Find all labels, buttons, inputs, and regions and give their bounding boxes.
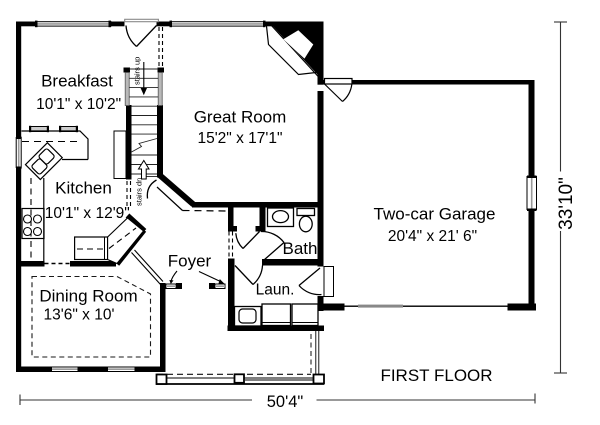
svg-text:Kitchen: Kitchen xyxy=(55,179,112,198)
svg-text:Bath: Bath xyxy=(283,239,318,258)
svg-text:Breakfast: Breakfast xyxy=(41,71,113,90)
svg-text:15'2" x 17'1": 15'2" x 17'1" xyxy=(197,130,282,147)
svg-text:10'1" x 12'9": 10'1" x 12'9" xyxy=(45,205,130,222)
svg-text:13'6" x 10': 13'6" x 10' xyxy=(44,307,115,324)
svg-text:Two-car Garage: Two-car Garage xyxy=(374,204,496,223)
svg-text:Laun.: Laun. xyxy=(256,282,295,299)
svg-text:stairs up: stairs up xyxy=(133,57,142,85)
svg-text:Dining Room: Dining Room xyxy=(39,287,137,306)
svg-text:FIRST FLOOR: FIRST FLOOR xyxy=(380,366,492,385)
svg-text:50'4": 50'4" xyxy=(267,393,304,411)
svg-text:Great Room: Great Room xyxy=(194,107,287,126)
svg-text:stairs dn: stairs dn xyxy=(135,178,144,206)
svg-text:20'4" x 21' 6": 20'4" x 21' 6" xyxy=(388,228,477,245)
svg-text:10'1" x 10'2": 10'1" x 10'2" xyxy=(36,96,121,113)
svg-text:33'10": 33'10" xyxy=(556,177,577,230)
svg-text:Foyer: Foyer xyxy=(168,252,212,271)
